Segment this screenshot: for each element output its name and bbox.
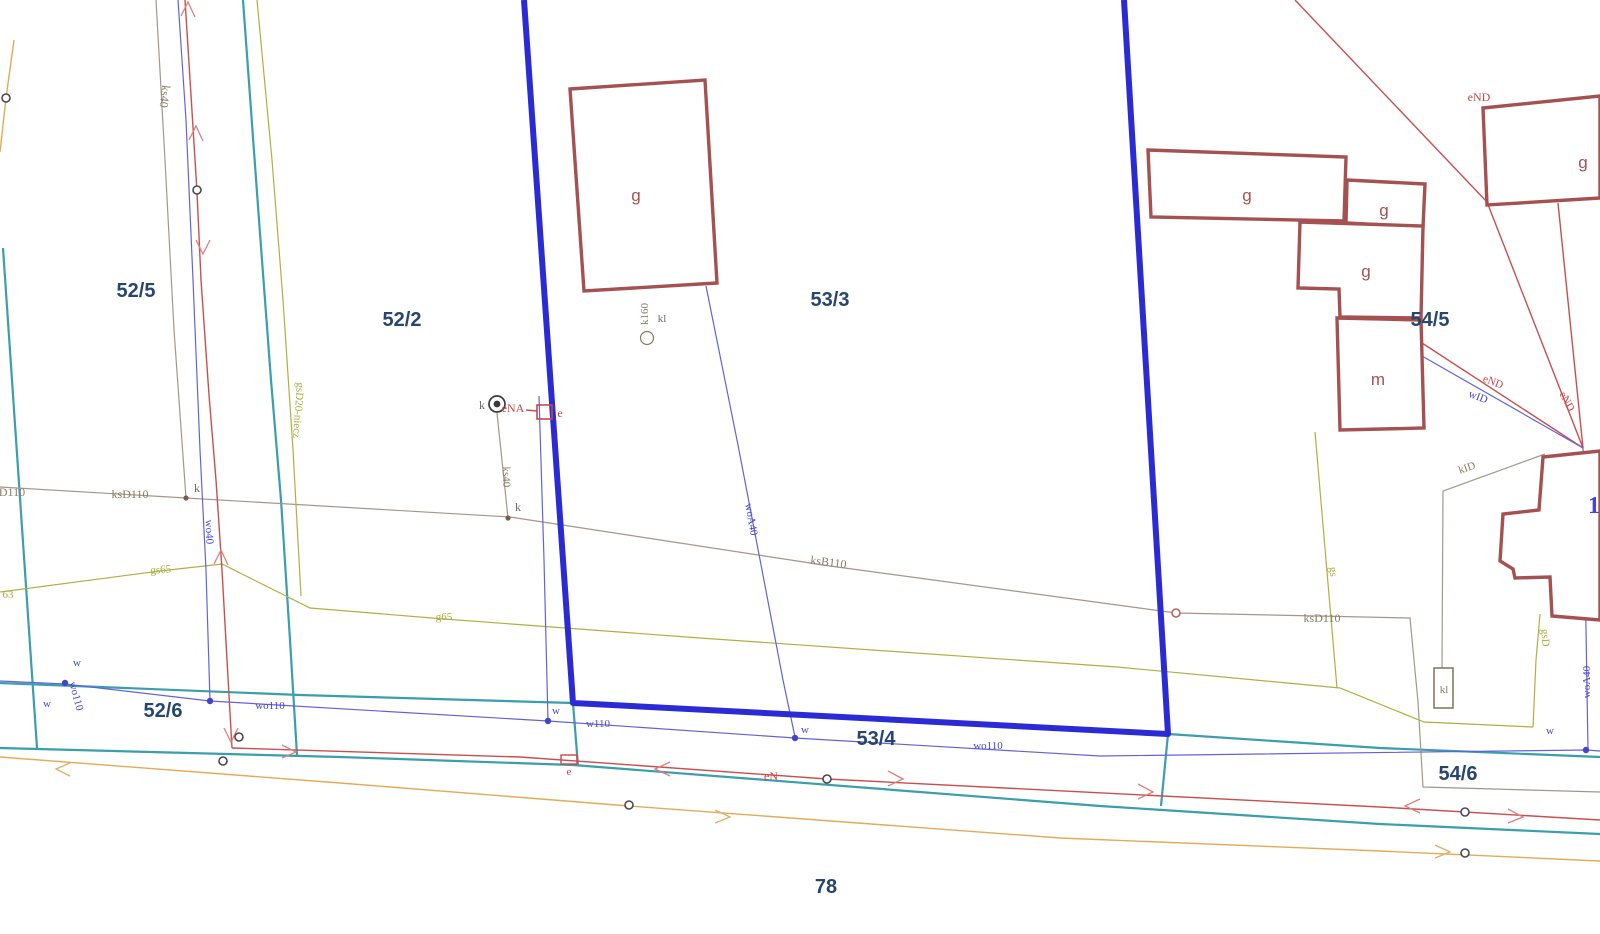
label-k-dot-right: k <box>515 500 521 514</box>
gas-gs-branch <box>1315 432 1337 688</box>
label-en: eN <box>764 769 778 783</box>
water-node-dot <box>1583 747 1589 753</box>
label-gsd20-niecz: gsD20-niecz <box>290 382 306 438</box>
parcel-54-5: 54/5 <box>1411 309 1450 331</box>
flow-arrow <box>1508 809 1523 823</box>
water-node-dot <box>792 735 798 741</box>
building-label-g-2: g <box>1242 186 1251 205</box>
water-boundary-drop <box>539 396 548 721</box>
parcel-53-3: 53/3 <box>811 289 850 311</box>
node-circle-icon <box>193 186 201 194</box>
label-woa40-mid: woA40 <box>742 502 760 536</box>
label-end-top: eND <box>1468 90 1491 104</box>
water-node-dot <box>207 698 213 704</box>
label-ks40-right: ks40 <box>500 466 513 488</box>
flow-arrow <box>655 762 670 776</box>
water-node-dot <box>545 718 551 724</box>
parcel-54-6: 54/6 <box>1439 763 1478 785</box>
teal-stub-right-corner <box>1161 734 1168 806</box>
label-gs65: gs65 <box>150 563 172 576</box>
sewer-node-dot <box>505 515 510 520</box>
road-south-edge <box>0 748 1600 834</box>
label-woa40-right: woA40 <box>1581 665 1593 698</box>
buildings <box>570 80 1600 620</box>
label-w-2: w <box>43 698 51 710</box>
k160-circle-icon <box>641 332 654 345</box>
building-label-g-3: g <box>1379 201 1388 220</box>
node-circle-icon <box>823 775 831 783</box>
teal-line-mid <box>243 0 297 755</box>
label-w-5: w <box>1546 725 1554 737</box>
water-wid-line <box>1422 356 1583 448</box>
orange-road-line <box>0 757 1600 861</box>
label-k-manhole: k <box>479 398 485 412</box>
parcel-52-2: 52/2 <box>383 309 422 331</box>
sewer-node-dot <box>183 495 188 500</box>
node-circle-icon <box>1461 849 1469 857</box>
label-ena: eNA <box>502 401 525 415</box>
flow-arrow <box>196 240 210 254</box>
map-canvas[interactable]: ks40gsD20-nieczkeNAeks40kwo40ksD110D110k… <box>0 0 1600 934</box>
sewer-node-circle-icon <box>1172 609 1180 617</box>
label-ksd110-right: ksD110 <box>1304 611 1341 625</box>
label-kid: kID <box>1457 460 1477 477</box>
label-wo110-left: wo110 <box>255 700 285 712</box>
flow-arrow <box>1435 845 1450 858</box>
gas-gsd20-line <box>257 0 301 596</box>
label-w-4: w <box>801 724 809 736</box>
sewer-ks40-left <box>156 0 186 498</box>
label-ks40-left: ks40 <box>157 84 174 108</box>
flow-arrow <box>189 126 203 141</box>
label-gsd: gsD <box>1539 629 1552 647</box>
building-label-g-4: g <box>1361 262 1370 281</box>
label-w-3: w <box>552 705 560 717</box>
label-w-1: w <box>73 657 81 669</box>
label-digit-1-partial: 1 <box>1588 493 1600 519</box>
label-kl-box: kl <box>1440 684 1449 696</box>
power-ena-leader <box>526 410 537 411</box>
node-circle-icon <box>625 801 633 809</box>
map-viewport[interactable]: ks40gsD20-nieczkeNAeks40kwo40ksD110D110k… <box>0 0 1600 934</box>
label-e-top: e <box>557 406 562 420</box>
flow-arrow <box>1405 799 1420 813</box>
node-circle-icon <box>219 757 227 765</box>
label-wo40: wo40 <box>203 519 216 544</box>
water-wo40-vertical <box>178 0 210 701</box>
flow-arrow <box>56 763 70 776</box>
label-k-dot-left: k <box>194 481 200 495</box>
parcel-52-5: 52/5 <box>117 280 156 302</box>
label-end-diag2: eND <box>1556 390 1576 414</box>
node-circle-icon <box>2 94 10 102</box>
label-ksb110: ksB110 <box>810 553 848 571</box>
label-gs63-edge: 63 <box>3 589 15 601</box>
power-en-road <box>232 748 1600 820</box>
road-north-edge <box>0 683 1600 757</box>
label-w110: w110 <box>586 718 611 730</box>
node-circle-icon <box>1461 808 1469 816</box>
flow-arrow <box>888 771 903 786</box>
building-label-m: m <box>1371 370 1385 389</box>
parcel-52-6: 52/6 <box>144 700 183 722</box>
label-e-road: e <box>567 766 572 778</box>
building-outline-g1 <box>570 80 717 291</box>
label-ksd110-left: ksD110 <box>112 487 149 501</box>
label-wo110-right: wo110 <box>973 740 1003 752</box>
flow-arrow <box>181 2 195 17</box>
label-gs-right: gs <box>1327 566 1340 577</box>
building-label-g-1: g <box>631 186 640 205</box>
label-ksd110-edge: D110 <box>0 485 25 499</box>
label-kl-mid: kl <box>658 313 667 325</box>
parcel-53-4: 53/4 <box>857 728 897 750</box>
sewer-ks40-right <box>497 413 508 518</box>
flow-arrow <box>1138 784 1153 799</box>
label-g65: g65 <box>436 611 453 623</box>
parcel-78: 78 <box>815 876 837 898</box>
building-outline-g5 <box>1483 96 1600 205</box>
node-circle-icon <box>235 733 243 741</box>
building-label-g-5: g <box>1578 153 1587 172</box>
building-outline-zigzag <box>1500 451 1600 620</box>
label-k160: k160 <box>639 303 651 326</box>
label-wid: wID <box>1467 388 1490 406</box>
